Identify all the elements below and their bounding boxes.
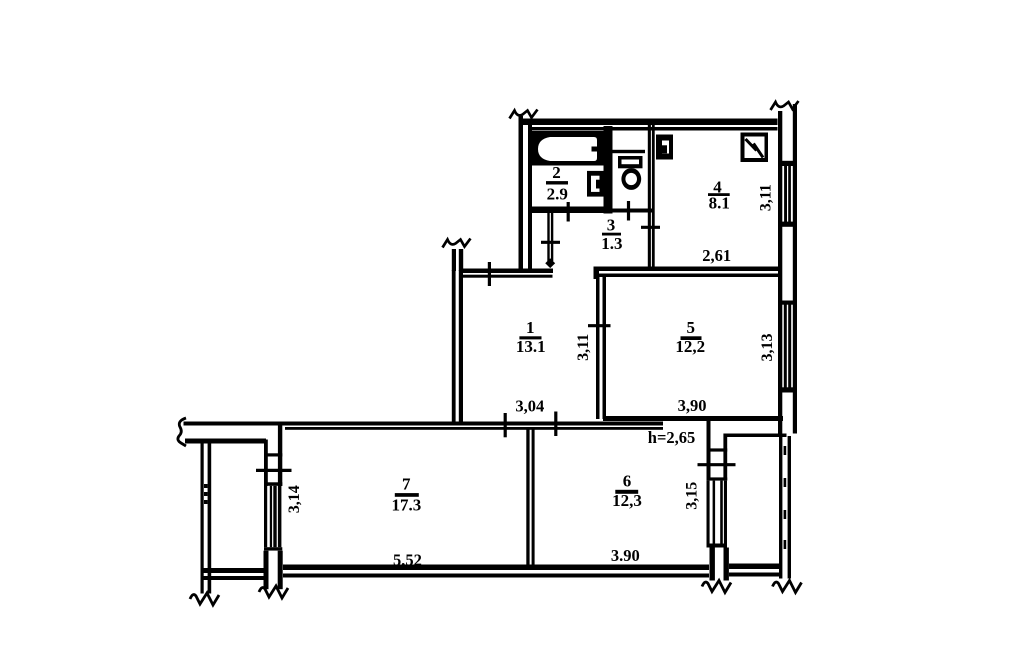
svg-text:3.90: 3.90 <box>611 546 640 565</box>
svg-text:3,14: 3,14 <box>286 485 303 513</box>
svg-text:8.1: 8.1 <box>709 194 730 213</box>
svg-text:h=2,65: h=2,65 <box>648 428 695 447</box>
svg-text:3,13: 3,13 <box>759 334 776 362</box>
svg-text:7: 7 <box>402 475 411 494</box>
svg-text:3,11: 3,11 <box>758 184 775 211</box>
svg-text:5,52: 5,52 <box>393 551 422 570</box>
svg-text:12,2: 12,2 <box>675 337 705 356</box>
svg-text:2.9: 2.9 <box>547 185 568 204</box>
svg-text:1: 1 <box>526 318 535 337</box>
svg-text:5: 5 <box>686 318 695 337</box>
svg-text:2,61: 2,61 <box>702 246 731 265</box>
svg-text:13.1: 13.1 <box>516 337 546 356</box>
svg-text:12,3: 12,3 <box>612 491 642 510</box>
svg-text:1.3: 1.3 <box>601 234 622 253</box>
svg-text:3,11: 3,11 <box>575 334 592 361</box>
svg-text:3: 3 <box>607 216 616 235</box>
svg-text:3,15: 3,15 <box>683 482 700 510</box>
svg-text:6: 6 <box>623 472 632 491</box>
svg-text:3,04: 3,04 <box>515 397 544 416</box>
svg-text:3,90: 3,90 <box>678 396 707 415</box>
svg-text:17.3: 17.3 <box>392 496 422 515</box>
svg-text:2: 2 <box>552 163 561 182</box>
